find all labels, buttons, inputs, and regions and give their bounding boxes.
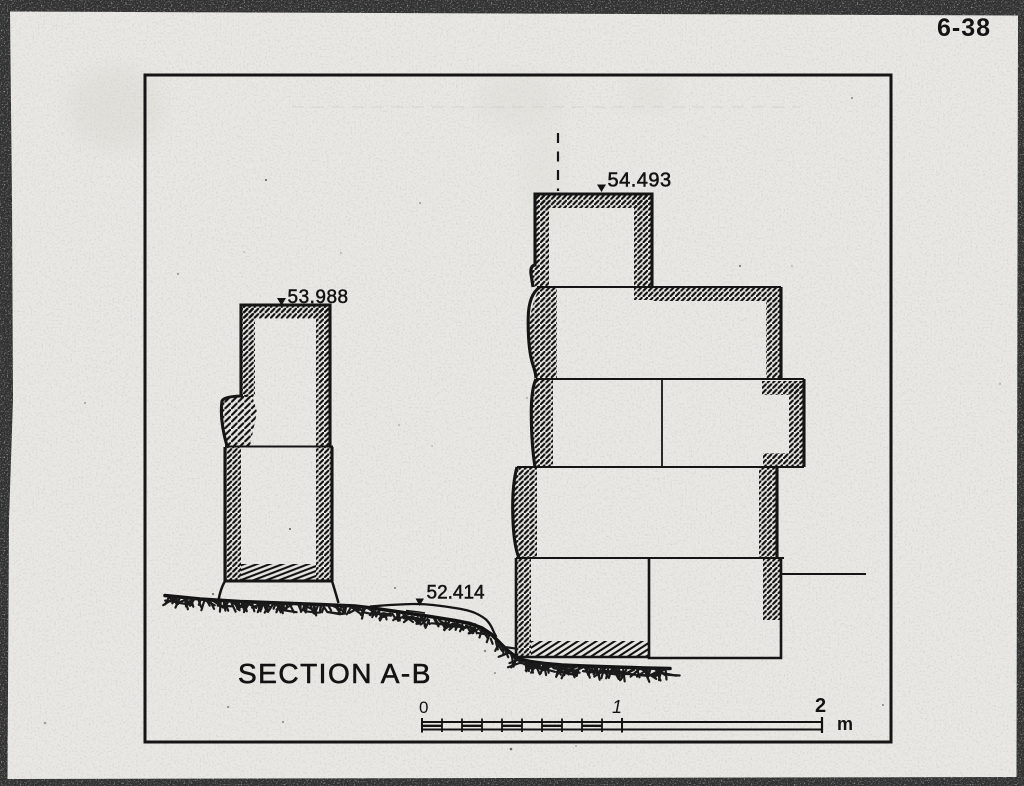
svg-text:m: m xyxy=(837,714,853,734)
svg-text:SECTION A-B: SECTION A-B xyxy=(238,658,432,689)
svg-text:52.414: 52.414 xyxy=(427,583,486,604)
svg-text:53.988: 53.988 xyxy=(288,287,349,308)
svg-text:0: 0 xyxy=(419,698,428,717)
svg-text:2: 2 xyxy=(815,695,826,717)
svg-text:6-38: 6-38 xyxy=(937,14,991,42)
svg-text:1: 1 xyxy=(612,697,622,717)
svg-text:54.493: 54.493 xyxy=(608,170,672,192)
